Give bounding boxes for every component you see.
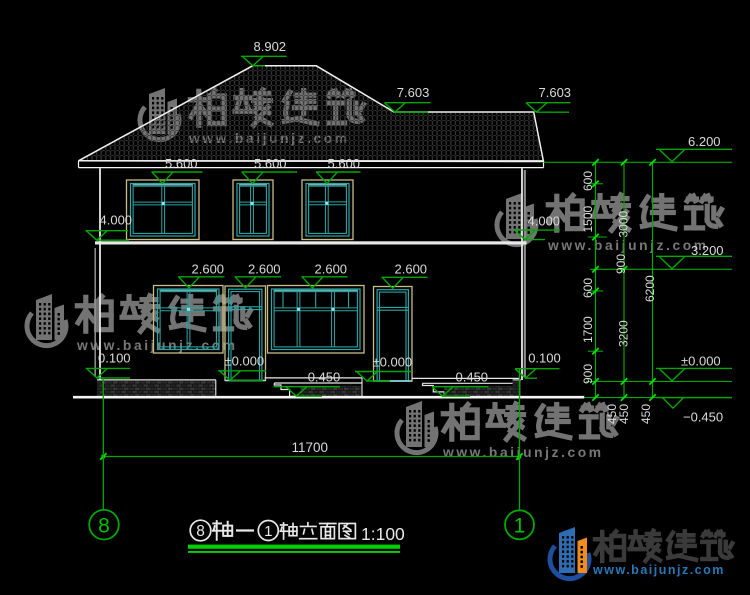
svg-text:www.baijunjz.com: www.baijunjz.com bbox=[592, 563, 725, 577]
svg-text:600: 600 bbox=[581, 278, 595, 298]
svg-text:1:100: 1:100 bbox=[361, 524, 405, 544]
svg-text:8.902: 8.902 bbox=[254, 39, 287, 54]
svg-text:7.603: 7.603 bbox=[539, 85, 572, 100]
svg-text:0.100: 0.100 bbox=[98, 351, 131, 366]
svg-text:www.baijunjz.com: www.baijunjz.com bbox=[442, 445, 604, 460]
svg-text:±0.000: ±0.000 bbox=[373, 355, 413, 370]
svg-text:0.100: 0.100 bbox=[528, 351, 561, 366]
svg-text:4.000: 4.000 bbox=[100, 213, 133, 228]
svg-text:5.600: 5.600 bbox=[328, 156, 361, 171]
svg-text:2.600: 2.600 bbox=[315, 262, 348, 277]
svg-text:600: 600 bbox=[581, 171, 595, 191]
svg-text:2.600: 2.600 bbox=[192, 262, 225, 277]
svg-text:8: 8 bbox=[98, 515, 110, 538]
svg-text:3200: 3200 bbox=[617, 320, 631, 347]
svg-text:www.baijunjz.com: www.baijunjz.com bbox=[547, 238, 709, 253]
svg-text:8: 8 bbox=[196, 523, 205, 540]
svg-text:6200: 6200 bbox=[643, 275, 657, 302]
svg-text:1500: 1500 bbox=[581, 205, 595, 232]
svg-text:11700: 11700 bbox=[292, 440, 329, 455]
svg-text:±0.000: ±0.000 bbox=[225, 354, 265, 369]
svg-text:4.000: 4.000 bbox=[528, 214, 561, 229]
svg-text:1: 1 bbox=[264, 523, 272, 540]
svg-text:3000: 3000 bbox=[617, 210, 631, 237]
svg-text:1700: 1700 bbox=[581, 316, 595, 343]
svg-text:450: 450 bbox=[639, 404, 653, 424]
svg-text:900: 900 bbox=[614, 254, 628, 274]
svg-text:450: 450 bbox=[617, 404, 631, 424]
svg-text:±0.000: ±0.000 bbox=[681, 354, 721, 369]
svg-text:2.600: 2.600 bbox=[395, 262, 428, 277]
svg-text:0.450: 0.450 bbox=[308, 370, 341, 385]
svg-text:900: 900 bbox=[581, 364, 595, 384]
svg-text:2.600: 2.600 bbox=[248, 262, 281, 277]
svg-text:5.600: 5.600 bbox=[165, 156, 198, 171]
svg-text:0.450: 0.450 bbox=[456, 370, 489, 385]
svg-text:1: 1 bbox=[514, 515, 526, 538]
svg-text:6.200: 6.200 bbox=[688, 134, 721, 149]
svg-text:7.603: 7.603 bbox=[397, 85, 430, 100]
svg-text:−0.450: −0.450 bbox=[683, 410, 723, 425]
svg-text:5.600: 5.600 bbox=[254, 156, 287, 171]
